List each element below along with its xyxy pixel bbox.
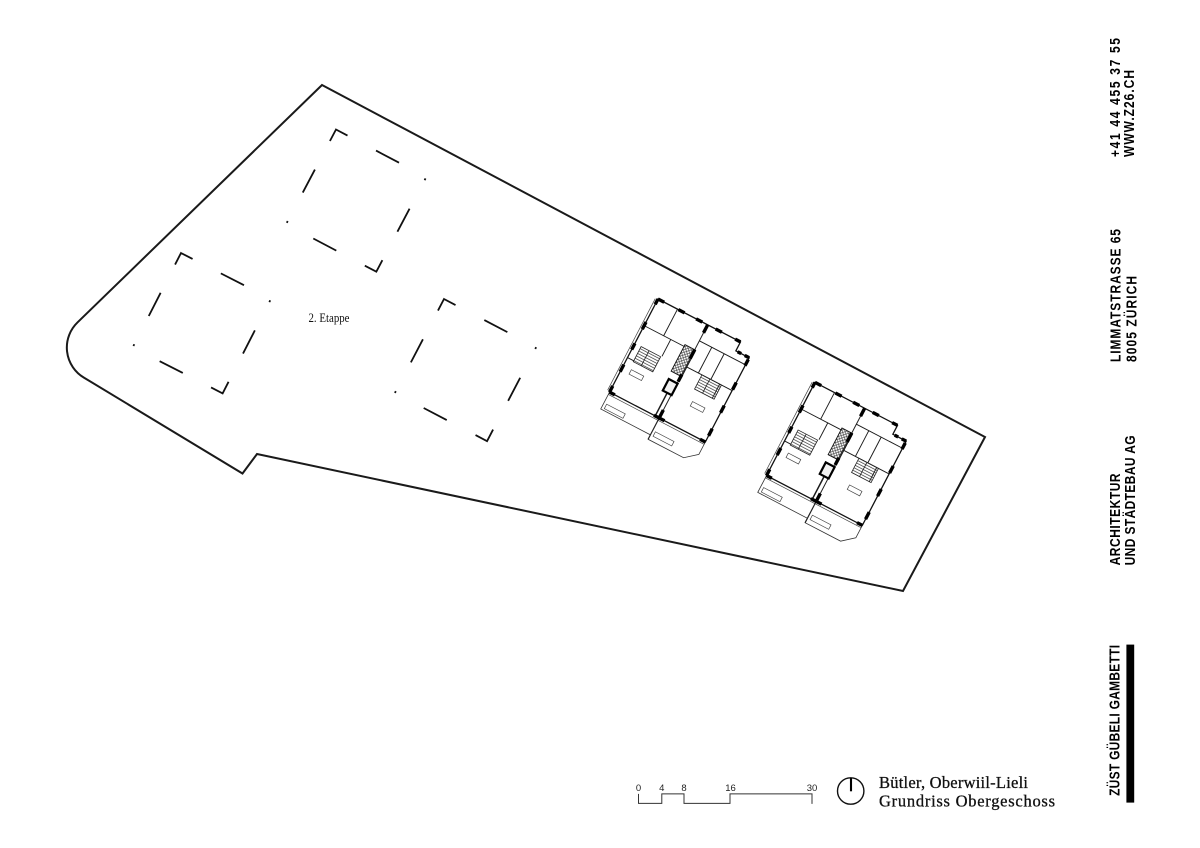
svg-text:16: 16 (725, 783, 736, 794)
svg-text:8005 ZÜRICH: 8005 ZÜRICH (1123, 276, 1140, 362)
svg-text:WWW.Z26.CH: WWW.Z26.CH (1121, 70, 1138, 157)
svg-text:8: 8 (681, 783, 686, 794)
svg-text:ZÜST GÜBELI GAMBETTI: ZÜST GÜBELI GAMBETTI (1106, 645, 1123, 796)
svg-text:UND STÄDTEBAU AG: UND STÄDTEBAU AG (1122, 435, 1139, 565)
svg-text:LIMMATSTRASSE 65: LIMMATSTRASSE 65 (1107, 229, 1124, 362)
svg-text:Bütler, Oberwiil-Lieli: Bütler, Oberwiil-Lieli (879, 773, 1028, 792)
svg-text:2. Etappe: 2. Etappe (309, 311, 350, 325)
svg-text:0: 0 (636, 783, 641, 794)
svg-text:Grundriss Obergeschoss: Grundriss Obergeschoss (879, 792, 1055, 811)
svg-text:30: 30 (807, 783, 818, 794)
svg-text:4: 4 (659, 783, 664, 794)
